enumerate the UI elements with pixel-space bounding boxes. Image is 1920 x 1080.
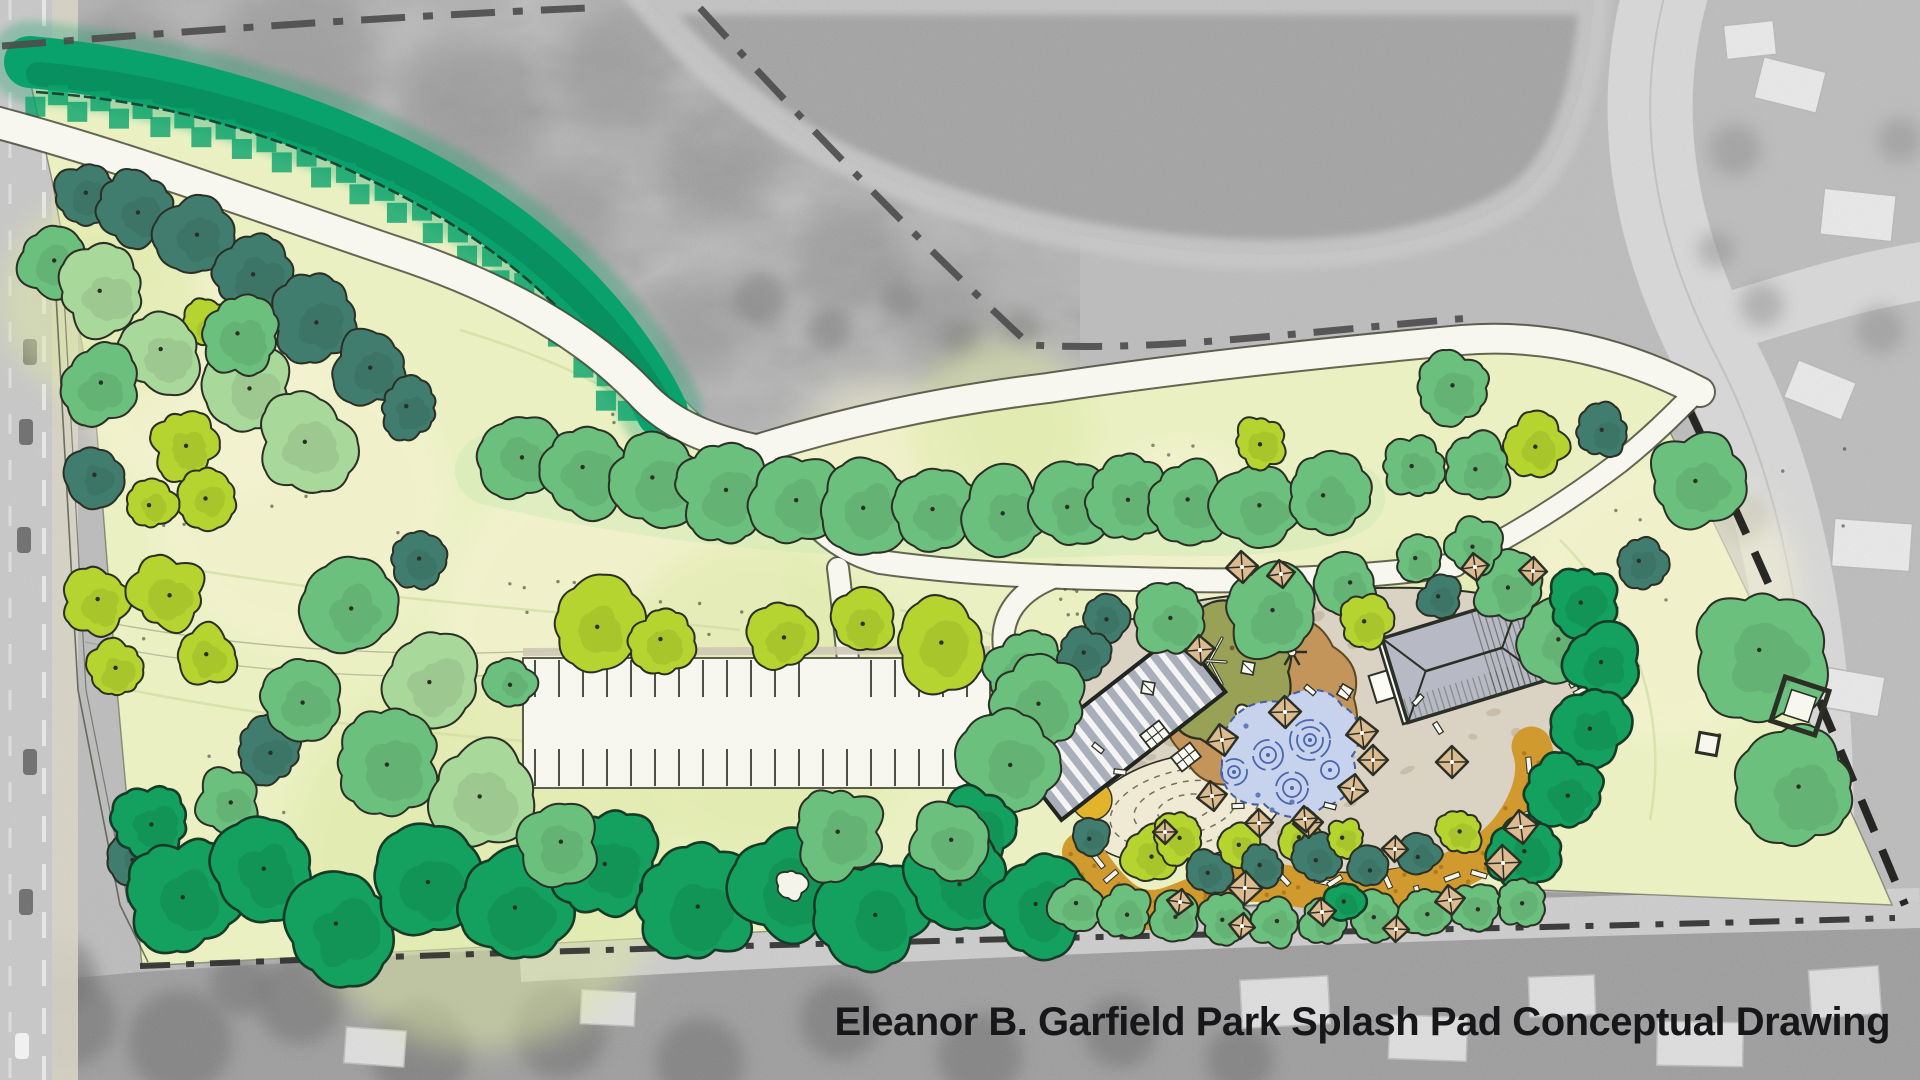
drawing-title: Eleanor B. Garfield Park Splash Pad Conc… [835,1002,1891,1042]
garfield-park-conceptual-drawing: Eleanor B. Garfield Park Splash Pad Conc… [0,0,1920,1080]
site-plan-canvas [0,0,1920,1080]
